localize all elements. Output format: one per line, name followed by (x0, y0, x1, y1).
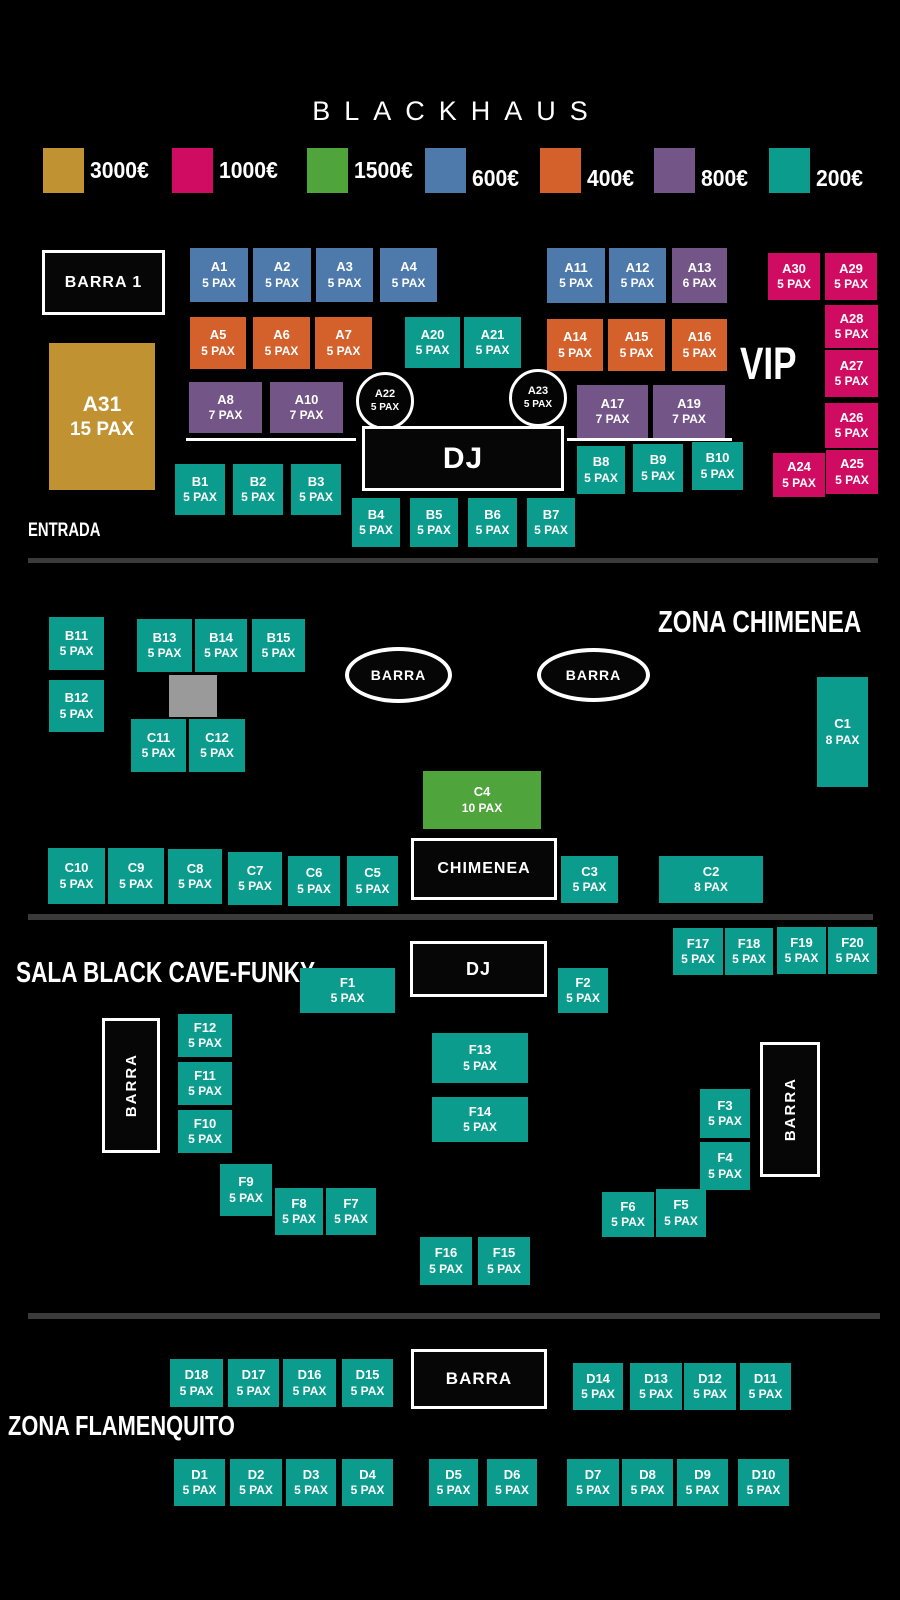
table-id-label: A24 (787, 459, 811, 475)
table-c4[interactable]: C410 PAX (423, 771, 541, 829)
table-id-label: A3 (336, 259, 353, 275)
table-id-label: B5 (426, 507, 443, 523)
table-id-label: F12 (194, 1020, 216, 1036)
table-pax-label: 5 PAX (237, 1384, 271, 1399)
table-id-label: F14 (469, 1104, 491, 1120)
table-a15[interactable]: A155 PAX (608, 319, 665, 371)
table-pax-label: 5 PAX (476, 343, 510, 358)
table-pax-label: 5 PAX (686, 1483, 720, 1498)
table-pax-label: 5 PAX (476, 523, 510, 538)
table-pax-label: 5 PAX (200, 746, 234, 761)
dj-booth-funky: DJ (410, 941, 547, 997)
table-id-label: D12 (698, 1371, 722, 1387)
table-a4[interactable]: A45 PAX (380, 248, 437, 302)
table-a26[interactable]: A265 PAX (825, 403, 878, 448)
table-pax-label: 5 PAX (581, 1387, 615, 1402)
table-pax-label: 5 PAX (188, 1036, 222, 1051)
table-b15[interactable]: B155 PAX (252, 619, 305, 672)
legend-swatch-200 (769, 148, 810, 193)
table-id-label: A7 (335, 327, 352, 343)
table-pax-label: 5 PAX (463, 1120, 497, 1135)
table-pax-label: 5 PAX (60, 707, 94, 722)
table-id-label: A27 (840, 358, 864, 374)
table-pax-label: 5 PAX (239, 1483, 273, 1498)
table-id-label: A14 (563, 329, 587, 345)
table-f5[interactable]: F55 PAX (656, 1189, 706, 1237)
table-pax-label: 5 PAX (584, 471, 618, 486)
table-pax-label: 5 PAX (681, 952, 715, 967)
legend-swatch-1500 (307, 148, 348, 193)
table-b10[interactable]: B105 PAX (692, 442, 743, 490)
table-id-label: D3 (303, 1467, 320, 1483)
table-b1[interactable]: B15 PAX (175, 464, 225, 515)
table-pax-label: 5 PAX (495, 1483, 529, 1498)
table-id-label: F16 (435, 1245, 457, 1261)
table-pax-label: 5 PAX (238, 879, 272, 894)
table-pax-label: 8 PAX (694, 880, 728, 895)
table-pax-label: 5 PAX (835, 327, 869, 342)
table-id-label: B6 (484, 507, 501, 523)
legend-swatch-1000 (172, 148, 213, 193)
table-a17[interactable]: A177 PAX (577, 385, 648, 438)
table-id-label: A10 (295, 392, 319, 408)
zone-divider-3 (28, 1313, 880, 1319)
table-a28[interactable]: A285 PAX (825, 305, 878, 348)
table-pax-label: 5 PAX (559, 276, 593, 291)
table-id-label: D15 (356, 1367, 380, 1383)
table-id-label: D5 (445, 1467, 462, 1483)
table-a30[interactable]: A305 PAX (768, 253, 820, 300)
table-pax-label: 5 PAX (834, 277, 868, 292)
table-a25[interactable]: A255 PAX (826, 450, 878, 494)
table-pax-label: 5 PAX (183, 1483, 217, 1498)
table-b7[interactable]: B75 PAX (527, 498, 575, 547)
table-d2[interactable]: D25 PAX (230, 1459, 282, 1506)
table-id-label: B7 (543, 507, 560, 523)
zone-title-entrada: ENTRADA (28, 521, 100, 541)
chimenea-fireplace: CHIMENEA (411, 838, 557, 900)
table-f9[interactable]: F95 PAX (220, 1164, 272, 1216)
table-pax-label: 5 PAX (201, 344, 235, 359)
table-pax-label: 5 PAX (183, 490, 217, 505)
table-c9[interactable]: C95 PAX (108, 848, 164, 904)
table-id-label: A23 (528, 385, 548, 399)
barra-flamenquito-label: BARRA (446, 1369, 512, 1389)
table-pax-label: 5 PAX (359, 523, 393, 538)
table-id-label: A25 (840, 456, 864, 472)
table-c7[interactable]: C75 PAX (228, 852, 282, 905)
table-pax-label: 5 PAX (701, 467, 735, 482)
table-b3[interactable]: B35 PAX (291, 464, 341, 515)
table-d12[interactable]: D125 PAX (684, 1363, 736, 1410)
table-id-label: B3 (308, 474, 325, 490)
table-a21[interactable]: A215 PAX (464, 317, 521, 368)
table-id-label: F5 (673, 1197, 688, 1213)
table-pax-label: 8 PAX (826, 733, 860, 748)
table-id-label: F13 (469, 1042, 491, 1058)
table-id-label: A16 (688, 329, 712, 345)
table-id-label: C4 (474, 784, 491, 800)
barra-1-bar-label: BARRA 1 (65, 274, 143, 292)
table-d16[interactable]: D165 PAX (283, 1359, 336, 1407)
table-id-label: D8 (639, 1467, 656, 1483)
table-b9[interactable]: B95 PAX (633, 444, 683, 492)
table-id-label: B1 (192, 474, 209, 490)
table-pax-label: 5 PAX (416, 343, 450, 358)
table-pax-label: 5 PAX (178, 877, 212, 892)
table-pax-label: 5 PAX (708, 1167, 742, 1182)
table-pax-label: 5 PAX (621, 276, 655, 291)
table-f1[interactable]: F15 PAX (300, 968, 395, 1013)
table-id-label: A26 (840, 410, 864, 426)
table-pax-label: 5 PAX (576, 1483, 610, 1498)
table-pax-label: 5 PAX (777, 277, 811, 292)
table-pax-label: 5 PAX (683, 346, 717, 361)
table-id-label: B15 (267, 630, 291, 646)
table-b8[interactable]: B85 PAX (577, 446, 625, 494)
table-id-label: A12 (626, 260, 650, 276)
table-pax-label: 5 PAX (60, 877, 94, 892)
table-pax-label: 5 PAX (328, 276, 362, 291)
table-id-label: F6 (620, 1199, 635, 1215)
table-pax-label: 5 PAX (693, 1387, 727, 1402)
table-id-label: A13 (688, 260, 712, 276)
table-c11[interactable]: C115 PAX (131, 719, 186, 772)
table-id-label: C12 (205, 730, 229, 746)
table-id-label: C9 (128, 860, 145, 876)
table-f8[interactable]: F85 PAX (275, 1188, 323, 1235)
table-id-label: B10 (706, 450, 730, 466)
table-a6[interactable]: A65 PAX (253, 317, 310, 369)
table-pax-label: 5 PAX (534, 523, 568, 538)
table-a11[interactable]: A115 PAX (547, 248, 605, 303)
table-c5[interactable]: C55 PAX (347, 856, 398, 906)
table-a7[interactable]: A75 PAX (315, 317, 372, 369)
table-c2[interactable]: C28 PAX (659, 856, 763, 903)
table-pax-label: 5 PAX (785, 951, 819, 966)
table-c3[interactable]: C35 PAX (561, 856, 618, 903)
legend-label-400: 400€ (587, 156, 634, 201)
table-pax-label: 5 PAX (293, 1384, 327, 1399)
table-pax-label: 5 PAX (620, 346, 654, 361)
table-c8[interactable]: C85 PAX (168, 849, 222, 904)
table-f7[interactable]: F75 PAX (326, 1188, 376, 1235)
table-id-label: A5 (210, 327, 227, 343)
table-pax-label: 5 PAX (836, 951, 870, 966)
table-d4[interactable]: D45 PAX (342, 1459, 393, 1506)
table-id-label: A6 (273, 327, 290, 343)
table-pax-label: 5 PAX (437, 1483, 471, 1498)
table-f17[interactable]: F175 PAX (673, 928, 723, 975)
chimenea-fireplace-label: CHIMENEA (437, 860, 530, 878)
table-f14[interactable]: F145 PAX (432, 1097, 528, 1142)
dj-booth-main: DJ (362, 426, 564, 491)
table-id-label: B9 (650, 452, 667, 468)
table-pax-label: 5 PAX (148, 646, 182, 661)
table-c12[interactable]: C125 PAX (189, 719, 245, 772)
table-a27[interactable]: A275 PAX (825, 350, 878, 397)
table-id-label: D4 (359, 1467, 376, 1483)
table-d9[interactable]: D95 PAX (677, 1459, 728, 1506)
table-id-label: B14 (209, 630, 233, 646)
table-pax-label: 5 PAX (142, 746, 176, 761)
table-a31[interactable]: A3115 PAX (49, 343, 155, 490)
table-f15[interactable]: F155 PAX (478, 1237, 530, 1285)
table-d10[interactable]: D105 PAX (738, 1459, 789, 1506)
table-pax-label: 5 PAX (835, 374, 869, 389)
table-id-label: A17 (601, 396, 625, 412)
stage-line-right (567, 438, 732, 441)
table-pax-label: 7 PAX (290, 408, 324, 423)
zone-divider-1 (28, 558, 878, 563)
table-pax-label: 5 PAX (732, 952, 766, 967)
table-pax-label: 7 PAX (596, 412, 630, 427)
table-id-label: C7 (247, 863, 264, 879)
table-pax-label: 5 PAX (188, 1084, 222, 1099)
table-pax-label: 5 PAX (299, 490, 333, 505)
table-f18[interactable]: F185 PAX (725, 928, 773, 975)
table-pax-label: 5 PAX (282, 1212, 316, 1227)
table-b11[interactable]: B115 PAX (49, 617, 104, 670)
legend-swatch-800 (654, 148, 695, 193)
table-b5[interactable]: B55 PAX (410, 498, 458, 547)
table-id-label: A4 (400, 259, 417, 275)
table-id-label: A1 (211, 259, 228, 275)
table-pax-label: 5 PAX (835, 473, 869, 488)
table-d17[interactable]: D175 PAX (228, 1359, 279, 1407)
table-pax-label: 5 PAX (417, 523, 451, 538)
barra-ellipse-left-label: BARRA (371, 667, 427, 683)
barra-ellipse-left: BARRA (345, 647, 452, 703)
table-a13[interactable]: A136 PAX (672, 248, 727, 303)
table-f3[interactable]: F35 PAX (700, 1089, 750, 1138)
table-a16[interactable]: A165 PAX (672, 319, 727, 371)
table-f19[interactable]: F195 PAX (777, 927, 826, 974)
table-pax-label: 5 PAX (611, 1215, 645, 1230)
legend-label-3000: 3000€ (90, 148, 149, 193)
table-f13[interactable]: F135 PAX (432, 1033, 528, 1083)
table-id-label: F17 (687, 936, 709, 952)
table-a1[interactable]: A15 PAX (190, 248, 248, 302)
venue-floor-plan: BLACKHAUS 3000€1000€1500€600€400€800€200… (0, 0, 900, 1600)
table-pax-label: 5 PAX (566, 991, 600, 1006)
table-a12[interactable]: A125 PAX (609, 248, 666, 303)
table-b4[interactable]: B45 PAX (352, 498, 400, 547)
column-obstacle (169, 675, 217, 717)
table-id-label: F19 (790, 935, 812, 951)
barra-ellipse-right: BARRA (537, 648, 650, 702)
table-id-label: C2 (703, 864, 720, 880)
table-pax-label: 5 PAX (356, 882, 390, 897)
table-pax-label: 5 PAX (463, 1059, 497, 1074)
table-pax-label: 5 PAX (782, 476, 816, 491)
zone-title-sala-black-cave: SALA BLACK CAVE-FUNKY (16, 958, 315, 988)
barra-vertical-right: BARRA (760, 1042, 820, 1177)
table-pax-label: 7 PAX (672, 412, 706, 427)
table-d7[interactable]: D75 PAX (567, 1459, 619, 1506)
table-d3[interactable]: D35 PAX (286, 1459, 336, 1506)
table-id-label: F9 (238, 1174, 253, 1190)
table-id-label: F7 (343, 1196, 358, 1212)
table-id-label: D18 (185, 1367, 209, 1383)
table-f10[interactable]: F105 PAX (178, 1110, 232, 1153)
table-id-label: F15 (493, 1245, 515, 1261)
table-id-label: C10 (65, 860, 89, 876)
table-id-label: C1 (834, 716, 851, 732)
table-a3[interactable]: A35 PAX (316, 248, 373, 302)
table-pax-label: 5 PAX (60, 644, 94, 659)
table-id-label: C3 (581, 864, 598, 880)
table-pax-label: 5 PAX (265, 276, 299, 291)
table-id-label: F4 (717, 1150, 732, 1166)
table-id-label: D2 (248, 1467, 265, 1483)
table-d1[interactable]: D15 PAX (174, 1459, 225, 1506)
table-id-label: D13 (644, 1371, 668, 1387)
table-f16[interactable]: F165 PAX (420, 1237, 472, 1285)
table-id-label: D14 (586, 1371, 610, 1387)
barra-flamenquito: BARRA (411, 1349, 547, 1409)
table-d8[interactable]: D85 PAX (622, 1459, 673, 1506)
table-pax-label: 5 PAX (664, 1214, 698, 1229)
table-c1[interactable]: C18 PAX (817, 677, 868, 787)
table-id-label: F11 (194, 1068, 216, 1084)
table-c6[interactable]: C65 PAX (288, 856, 340, 906)
barra-vertical-left: BARRA (102, 1018, 160, 1153)
table-id-label: F8 (291, 1196, 306, 1212)
stage-line-left (186, 438, 356, 441)
table-pax-label: 5 PAX (749, 1387, 783, 1402)
table-b12[interactable]: B125 PAX (49, 680, 104, 732)
table-id-label: A29 (839, 261, 863, 277)
table-d18[interactable]: D185 PAX (170, 1359, 223, 1407)
table-b6[interactable]: B65 PAX (468, 498, 517, 547)
table-pax-label: 5 PAX (558, 346, 592, 361)
table-f11[interactable]: F115 PAX (178, 1062, 232, 1105)
table-a2[interactable]: A25 PAX (253, 248, 311, 302)
table-id-label: A30 (782, 261, 806, 277)
table-pax-label: 5 PAX (351, 1483, 385, 1498)
table-id-label: F2 (575, 975, 590, 991)
table-pax-label: 5 PAX (180, 1384, 214, 1399)
table-d14[interactable]: D145 PAX (573, 1363, 623, 1410)
table-a24[interactable]: A245 PAX (773, 453, 825, 497)
zone-title-zona-chimenea: ZONA CHIMENEA (658, 606, 861, 639)
table-a22[interactable]: A225 PAX (356, 372, 414, 430)
table-f12[interactable]: F125 PAX (178, 1014, 232, 1057)
table-a20[interactable]: A205 PAX (405, 317, 460, 368)
table-b13[interactable]: B135 PAX (137, 619, 192, 672)
table-id-label: A31 (83, 392, 122, 418)
barra-vertical-left-label: BARRA (123, 1053, 140, 1117)
legend-label-1000: 1000€ (219, 148, 278, 193)
table-pax-label: 5 PAX (747, 1483, 781, 1498)
table-pax-label: 5 PAX (631, 1483, 665, 1498)
table-id-label: D1 (191, 1467, 208, 1483)
table-pax-label: 5 PAX (229, 1191, 263, 1206)
table-id-label: D11 (754, 1371, 777, 1387)
table-pax-label: 5 PAX (371, 402, 399, 415)
barra-vertical-right-label: BARRA (782, 1077, 799, 1141)
table-pax-label: 7 PAX (209, 408, 243, 423)
table-pax-label: 5 PAX (204, 646, 238, 661)
table-id-label: C6 (306, 865, 323, 881)
barra-ellipse-right-label: BARRA (566, 667, 622, 683)
table-pax-label: 5 PAX (573, 880, 607, 895)
zone-title-zona-flamenquito: ZONA FLAMENQUITO (8, 1411, 235, 1440)
table-id-label: F1 (340, 975, 355, 991)
table-id-label: B13 (153, 630, 177, 646)
table-pax-label: 5 PAX (639, 1387, 673, 1402)
table-pax-label: 5 PAX (202, 276, 236, 291)
table-id-label: B12 (65, 690, 89, 706)
zone-divider-2 (28, 914, 873, 920)
table-a23[interactable]: A235 PAX (509, 369, 567, 427)
table-a29[interactable]: A295 PAX (825, 253, 877, 300)
table-pax-label: 5 PAX (708, 1114, 742, 1129)
table-a8[interactable]: A87 PAX (189, 382, 262, 433)
table-a14[interactable]: A145 PAX (547, 319, 603, 371)
table-d6[interactable]: D65 PAX (487, 1459, 537, 1506)
table-f4[interactable]: F45 PAX (700, 1142, 750, 1190)
table-pax-label: 5 PAX (331, 991, 365, 1006)
table-id-label: D16 (298, 1367, 322, 1383)
table-id-label: F10 (194, 1116, 216, 1132)
table-pax-label: 5 PAX (262, 646, 296, 661)
table-id-label: A22 (375, 388, 395, 402)
table-pax-label: 5 PAX (241, 490, 275, 505)
table-id-label: C11 (147, 730, 170, 746)
table-b14[interactable]: B145 PAX (195, 619, 247, 672)
table-pax-label: 5 PAX (487, 1262, 521, 1277)
table-pax-label: 5 PAX (119, 877, 153, 892)
zone-title-vip: VIP (740, 340, 797, 387)
table-id-label: A21 (481, 327, 505, 343)
table-id-label: B8 (593, 454, 610, 470)
table-pax-label: 5 PAX (392, 276, 426, 291)
table-id-label: A28 (840, 311, 864, 327)
table-pax-label: 5 PAX (188, 1132, 222, 1147)
table-id-label: C5 (364, 865, 381, 881)
table-pax-label: 10 PAX (462, 801, 502, 816)
table-b2[interactable]: B25 PAX (233, 464, 283, 515)
table-id-label: D17 (242, 1367, 266, 1383)
table-a5[interactable]: A55 PAX (190, 317, 246, 369)
table-pax-label: 5 PAX (835, 426, 869, 441)
legend-label-200: 200€ (816, 156, 863, 201)
table-id-label: A15 (625, 329, 649, 345)
table-d5[interactable]: D55 PAX (429, 1459, 478, 1506)
table-id-label: D6 (504, 1467, 521, 1483)
table-id-label: F18 (738, 936, 760, 952)
table-f6[interactable]: F65 PAX (602, 1192, 654, 1237)
table-a10[interactable]: A107 PAX (270, 382, 343, 433)
table-f2[interactable]: F25 PAX (558, 968, 608, 1013)
table-id-label: A19 (677, 396, 701, 412)
table-c10[interactable]: C105 PAX (48, 848, 105, 904)
table-pax-label: 5 PAX (297, 882, 331, 897)
table-a19[interactable]: A197 PAX (653, 385, 725, 438)
dj-booth-funky-label: DJ (466, 959, 491, 980)
table-d11[interactable]: D115 PAX (740, 1363, 791, 1410)
table-f20[interactable]: F205 PAX (828, 927, 877, 974)
legend-swatch-3000 (43, 148, 84, 193)
table-d15[interactable]: D155 PAX (342, 1359, 393, 1407)
table-pax-label: 5 PAX (294, 1483, 328, 1498)
table-d13[interactable]: D135 PAX (630, 1363, 682, 1410)
table-id-label: A11 (564, 260, 587, 276)
table-id-label: A2 (274, 259, 291, 275)
table-id-label: A8 (217, 392, 234, 408)
